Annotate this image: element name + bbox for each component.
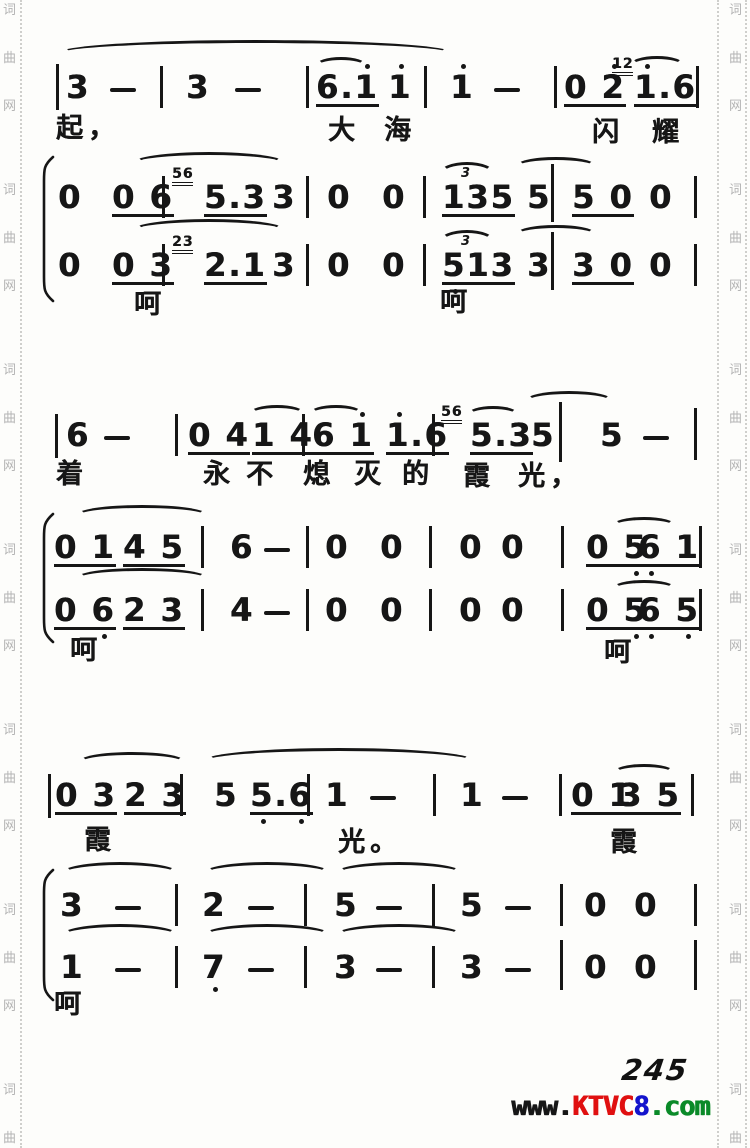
note-digit: 5 bbox=[460, 890, 484, 920]
watermark-segment: .com bbox=[648, 1091, 709, 1122]
note-digit bbox=[212, 420, 225, 450]
watermark-segment: KTVC bbox=[572, 1091, 633, 1122]
edge-watermark-char-right: 曲 bbox=[729, 592, 742, 606]
note-digit: 0 bbox=[188, 420, 212, 450]
note: 0 bbox=[58, 182, 82, 212]
barline bbox=[306, 176, 309, 218]
note-digit: 5 bbox=[442, 250, 466, 280]
note-digit: 0 bbox=[327, 250, 351, 280]
barline bbox=[175, 884, 178, 926]
note: 0 2 bbox=[564, 72, 626, 107]
note: 2 3 bbox=[123, 595, 185, 630]
barline bbox=[432, 884, 435, 926]
system-brace bbox=[40, 868, 56, 1006]
note-digit bbox=[596, 182, 609, 212]
note-digit: 5 bbox=[491, 182, 515, 212]
note-digit: 0 bbox=[380, 532, 404, 562]
note-digit: 0 bbox=[609, 182, 633, 212]
note: 0 bbox=[501, 595, 525, 625]
note-digit: 5 bbox=[675, 595, 699, 625]
lyric: 的 bbox=[402, 460, 434, 490]
note: 5 bbox=[214, 780, 238, 810]
duration-dash bbox=[264, 548, 290, 552]
note: 6 1 bbox=[312, 420, 374, 455]
edge-watermark-char-right: 曲 bbox=[729, 1132, 742, 1146]
note-digit: 0 bbox=[586, 532, 610, 562]
note-digit: 1 bbox=[354, 72, 378, 102]
edge-watermark-char-left: 曲 bbox=[3, 1132, 16, 1146]
note: 5.6 bbox=[250, 780, 313, 815]
note-digit: 3 bbox=[491, 250, 515, 280]
note: 0 bbox=[58, 250, 82, 280]
note-digit: 1 bbox=[386, 420, 410, 450]
note-digit: 3 bbox=[466, 182, 490, 212]
lyric: 呵 bbox=[134, 290, 166, 320]
duration-dash bbox=[376, 968, 402, 972]
slur-arc bbox=[204, 924, 330, 946]
note: 0 bbox=[380, 595, 404, 625]
barline bbox=[559, 774, 562, 816]
duration-dash bbox=[376, 906, 402, 910]
page-number: 245 bbox=[620, 1053, 691, 1087]
barline bbox=[694, 884, 697, 926]
site-watermark: www.KTVC8.com bbox=[511, 1091, 709, 1122]
note-digit: 3 bbox=[334, 952, 358, 982]
edge-watermark-char-right: 曲 bbox=[729, 52, 742, 66]
note-digit: 1 bbox=[60, 952, 84, 982]
duration-dash bbox=[115, 968, 141, 972]
slur-arc bbox=[133, 219, 285, 241]
note-digit: . bbox=[410, 420, 424, 450]
edge-watermark-char-right: 网 bbox=[729, 640, 742, 654]
note-digit: 0 bbox=[584, 890, 608, 920]
note-digit: 6 bbox=[672, 72, 696, 102]
note: 0 1 bbox=[54, 532, 116, 567]
duration-dash bbox=[248, 968, 274, 972]
note: 0 4 bbox=[188, 420, 250, 455]
duration-dash bbox=[643, 436, 669, 440]
note: 1 bbox=[388, 72, 412, 102]
note-digit bbox=[276, 420, 289, 450]
lyric: 呵 bbox=[54, 990, 86, 1020]
note: 5 bbox=[460, 890, 484, 920]
slur-arc bbox=[133, 152, 285, 174]
note-digit bbox=[596, 250, 609, 280]
barline bbox=[56, 64, 59, 110]
note: 6 1 bbox=[638, 532, 700, 567]
note-digit: 6 bbox=[638, 595, 662, 625]
duration-dash bbox=[264, 611, 290, 615]
edge-watermark-char-left: 网 bbox=[3, 280, 16, 294]
note: 6.1 bbox=[316, 72, 379, 107]
note: 1 bbox=[450, 72, 474, 102]
note-digit: 1 bbox=[450, 72, 474, 102]
note: 3 bbox=[272, 182, 296, 212]
note-digit: 0 bbox=[634, 890, 658, 920]
note-digit: 0 bbox=[325, 532, 349, 562]
slur-arc bbox=[76, 568, 208, 588]
edge-watermark-char-left: 词 bbox=[3, 364, 16, 378]
note: 5.3 bbox=[470, 420, 533, 455]
barline bbox=[423, 176, 426, 218]
note-digit: . bbox=[658, 72, 672, 102]
barline bbox=[304, 884, 307, 926]
edge-dotted-line bbox=[717, 0, 719, 1148]
note-digit bbox=[588, 72, 601, 102]
lyric: 灭 bbox=[354, 460, 386, 490]
note-digit: 5 bbox=[160, 532, 184, 562]
note-digit: 0 bbox=[501, 595, 525, 625]
note: 0 bbox=[649, 250, 673, 280]
note-digit: 0 bbox=[382, 182, 406, 212]
note: 6 bbox=[230, 532, 254, 562]
note-digit: . bbox=[494, 420, 508, 450]
barline bbox=[560, 940, 563, 990]
lyric: 闪 bbox=[592, 118, 624, 148]
note-digit: 5 bbox=[214, 780, 238, 810]
note-digit: 1 bbox=[388, 72, 412, 102]
barline bbox=[694, 244, 697, 286]
duration-dash bbox=[235, 88, 261, 92]
note-digit: 1 bbox=[675, 532, 699, 562]
edge-watermark-char-left: 词 bbox=[3, 1084, 16, 1098]
barline bbox=[306, 526, 309, 568]
grace-notes: 12 bbox=[612, 58, 633, 76]
note: 0 bbox=[634, 890, 658, 920]
note-digit bbox=[136, 250, 149, 280]
barline bbox=[699, 589, 702, 631]
lyric: 永 bbox=[203, 460, 235, 490]
note-digit bbox=[610, 532, 623, 562]
barline bbox=[423, 244, 426, 286]
lyric: 呵 bbox=[604, 638, 636, 668]
note-digit: 3 bbox=[60, 890, 84, 920]
barline bbox=[691, 774, 694, 816]
note-digit: 0 bbox=[584, 952, 608, 982]
slur-arc bbox=[516, 225, 596, 243]
note-digit: 6 bbox=[66, 420, 90, 450]
barline bbox=[429, 589, 432, 631]
note-digit: 5 bbox=[204, 182, 228, 212]
note: 6 bbox=[66, 420, 90, 450]
note: 1 bbox=[325, 780, 349, 810]
note-digit: 5 bbox=[470, 420, 494, 450]
barline bbox=[694, 408, 697, 460]
barline bbox=[160, 66, 163, 108]
note-digit: 3 bbox=[272, 182, 296, 212]
note: 7 bbox=[202, 952, 226, 982]
note-digit: 1 bbox=[325, 780, 349, 810]
grace-notes: 56 bbox=[172, 168, 193, 186]
note-digit: 3 bbox=[508, 420, 532, 450]
barline bbox=[306, 66, 309, 108]
duration-dash bbox=[505, 968, 531, 972]
note-digit: 3 bbox=[572, 250, 596, 280]
note-digit: 5 bbox=[600, 420, 624, 450]
edge-dotted-line bbox=[745, 0, 747, 1148]
note: 0 bbox=[584, 890, 608, 920]
note-digit bbox=[147, 595, 160, 625]
note: 0 bbox=[459, 595, 483, 625]
note-digit: 3 bbox=[186, 72, 210, 102]
note: 5 bbox=[527, 182, 551, 212]
slur-arc bbox=[203, 748, 475, 774]
note-digit: 2 bbox=[601, 72, 625, 102]
note-digit: 3 bbox=[272, 250, 296, 280]
note: 1.6 bbox=[386, 420, 449, 455]
grace-notes: 56 bbox=[441, 406, 462, 424]
note: 0 bbox=[380, 532, 404, 562]
barline bbox=[560, 884, 563, 926]
barline bbox=[561, 589, 564, 631]
slur-arc bbox=[62, 862, 178, 884]
note-digit bbox=[662, 532, 675, 562]
note-digit: 3 bbox=[619, 780, 643, 810]
edge-watermark-char-right: 词 bbox=[729, 904, 742, 918]
note: 2 3 bbox=[124, 780, 186, 815]
note: 6 5 bbox=[638, 595, 700, 630]
edge-watermark-char-right: 曲 bbox=[729, 772, 742, 786]
edge-watermark-char-left: 词 bbox=[3, 184, 16, 198]
note: 0 bbox=[382, 182, 406, 212]
triplet-number: 3 bbox=[461, 234, 470, 249]
slur-arc bbox=[58, 40, 453, 66]
barline bbox=[175, 414, 178, 456]
note: 3 0 bbox=[572, 250, 634, 285]
note-digit: 4 bbox=[123, 532, 147, 562]
note-digit: 5 bbox=[250, 780, 274, 810]
lyric: 霞 bbox=[84, 826, 116, 856]
note-digit bbox=[136, 182, 149, 212]
barline bbox=[175, 946, 178, 988]
edge-watermark-char-right: 词 bbox=[729, 184, 742, 198]
lyric: 光， bbox=[518, 462, 582, 492]
watermark-segment: 8 bbox=[633, 1091, 648, 1122]
edge-watermark-char-right: 网 bbox=[729, 1000, 742, 1014]
note-digit: 7 bbox=[202, 952, 226, 982]
edge-watermark-char-left: 曲 bbox=[3, 772, 16, 786]
note: 513 bbox=[442, 250, 515, 285]
note-digit bbox=[610, 595, 623, 625]
edge-watermark-char-left: 曲 bbox=[3, 232, 16, 246]
note-digit: 0 bbox=[380, 595, 404, 625]
slur-arc bbox=[516, 157, 596, 175]
note: 3 bbox=[186, 72, 210, 102]
slur-arc bbox=[336, 924, 462, 946]
note: 3 5 bbox=[619, 780, 681, 815]
duration-dash bbox=[115, 906, 141, 910]
edge-watermark-char-right: 网 bbox=[729, 100, 742, 114]
note-digit: 0 bbox=[586, 595, 610, 625]
lyric: 熄 bbox=[303, 460, 335, 490]
note: 0 bbox=[459, 532, 483, 562]
note-digit bbox=[148, 780, 161, 810]
note: 4 bbox=[230, 595, 254, 625]
edge-watermark-char-right: 网 bbox=[729, 460, 742, 474]
barline bbox=[432, 414, 435, 456]
barline bbox=[551, 232, 554, 290]
edge-watermark-char-left: 网 bbox=[3, 460, 16, 474]
slur-arc bbox=[78, 752, 186, 772]
note: 5.3 bbox=[204, 182, 267, 217]
note: 3 bbox=[60, 890, 84, 920]
barline bbox=[306, 589, 309, 631]
edge-watermark-char-right: 词 bbox=[729, 544, 742, 558]
barline bbox=[55, 414, 58, 458]
barline bbox=[424, 66, 427, 108]
duration-dash bbox=[370, 796, 396, 800]
edge-watermark-char-left: 网 bbox=[3, 1000, 16, 1014]
edge-watermark-char-right: 曲 bbox=[729, 232, 742, 246]
duration-dash bbox=[110, 88, 136, 92]
note-digit bbox=[78, 595, 91, 625]
lyric: 起， bbox=[56, 114, 120, 144]
note-digit: 0 bbox=[54, 595, 78, 625]
lyric: 不 bbox=[246, 460, 278, 490]
lyric: 呵 bbox=[440, 288, 472, 318]
edge-watermark-char-left: 曲 bbox=[3, 412, 16, 426]
note-digit bbox=[147, 532, 160, 562]
barline bbox=[551, 164, 554, 222]
barline bbox=[162, 244, 165, 286]
note: 0 bbox=[327, 250, 351, 280]
system-brace bbox=[40, 155, 56, 307]
duration-dash bbox=[104, 436, 130, 440]
note-digit: 0 bbox=[609, 250, 633, 280]
note-digit: 3 bbox=[242, 182, 266, 212]
note: 0 3 bbox=[55, 780, 117, 815]
note: 5 0 bbox=[572, 182, 634, 217]
barline bbox=[162, 176, 165, 218]
note-digit: 0 bbox=[649, 250, 673, 280]
note-digit bbox=[336, 420, 349, 450]
note-digit: 5 bbox=[531, 420, 555, 450]
barline bbox=[304, 946, 307, 988]
barline bbox=[561, 526, 564, 568]
note: 1 bbox=[60, 952, 84, 982]
note-digit: 0 bbox=[459, 532, 483, 562]
slur-arc bbox=[336, 862, 462, 884]
barline bbox=[180, 774, 183, 816]
note-digit: 0 bbox=[112, 250, 136, 280]
note-digit: 0 bbox=[382, 250, 406, 280]
note: 0 6 bbox=[54, 595, 116, 630]
edge-watermark-char-left: 曲 bbox=[3, 952, 16, 966]
note-digit: 0 bbox=[112, 182, 136, 212]
note-digit: 3 bbox=[460, 952, 484, 982]
note: 2.1 bbox=[204, 250, 267, 285]
note: 0 bbox=[325, 595, 349, 625]
barline bbox=[201, 526, 204, 568]
note: 3 bbox=[334, 952, 358, 982]
note-digit: 6 bbox=[230, 532, 254, 562]
duration-dash bbox=[505, 906, 531, 910]
edge-watermark-char-right: 曲 bbox=[729, 952, 742, 966]
note-digit bbox=[662, 595, 675, 625]
edge-watermark-char-left: 曲 bbox=[3, 592, 16, 606]
edge-watermark-char-left: 词 bbox=[3, 904, 16, 918]
note: 0 bbox=[501, 532, 525, 562]
note-digit: 0 bbox=[649, 182, 673, 212]
note-digit: 0 bbox=[55, 780, 79, 810]
watermark-segment: www. bbox=[511, 1091, 572, 1122]
slur-arc bbox=[76, 505, 208, 525]
slur-arc bbox=[62, 924, 178, 946]
edge-watermark-char-right: 曲 bbox=[729, 412, 742, 426]
note-digit: 3 bbox=[160, 595, 184, 625]
note-digit: 0 bbox=[459, 595, 483, 625]
barline bbox=[307, 774, 310, 816]
note: 3 bbox=[460, 952, 484, 982]
edge-dotted-line bbox=[20, 0, 22, 1148]
barline bbox=[429, 526, 432, 568]
lyric: 光。 bbox=[338, 828, 402, 858]
note: 0 bbox=[325, 532, 349, 562]
note: 0 bbox=[649, 182, 673, 212]
note: 0 bbox=[327, 182, 351, 212]
note-digit: 0 bbox=[571, 780, 595, 810]
barline bbox=[559, 402, 562, 462]
note-digit bbox=[78, 532, 91, 562]
duration-dash bbox=[502, 796, 528, 800]
note-digit: 5 bbox=[527, 182, 551, 212]
note-digit: 1 bbox=[242, 250, 266, 280]
note-digit bbox=[643, 780, 656, 810]
edge-watermark-char-right: 网 bbox=[729, 820, 742, 834]
note-digit: 3 bbox=[527, 250, 551, 280]
lyric: 霞 bbox=[610, 828, 642, 858]
note-digit: 1 bbox=[466, 250, 490, 280]
barline bbox=[696, 66, 699, 108]
edge-watermark-char-left: 曲 bbox=[3, 52, 16, 66]
note: 3 bbox=[527, 250, 551, 280]
note-digit: 1 bbox=[634, 72, 658, 102]
edge-watermark-char-right: 词 bbox=[729, 1084, 742, 1098]
note: 4 5 bbox=[123, 532, 185, 567]
note-digit: . bbox=[228, 250, 242, 280]
note-digit: 5 bbox=[334, 890, 358, 920]
lyric: 海 bbox=[384, 116, 416, 146]
note-digit: 4 bbox=[230, 595, 254, 625]
note: 3 bbox=[272, 250, 296, 280]
note-digit: 5 bbox=[572, 182, 596, 212]
note-digit: 1 bbox=[442, 182, 466, 212]
duration-dash bbox=[248, 906, 274, 910]
note-digit: 0 bbox=[327, 182, 351, 212]
barline bbox=[48, 774, 51, 818]
note-digit bbox=[595, 780, 608, 810]
note-digit: 0 bbox=[58, 182, 82, 212]
edge-watermark-char-left: 网 bbox=[3, 640, 16, 654]
note: 0 bbox=[382, 250, 406, 280]
edge-watermark-char-left: 网 bbox=[3, 820, 16, 834]
note-digit: . bbox=[274, 780, 288, 810]
note: 135 bbox=[442, 182, 515, 217]
note-digit: 3 bbox=[66, 72, 90, 102]
note-digit: 0 bbox=[634, 952, 658, 982]
note-digit: 1 bbox=[91, 532, 115, 562]
note-digit: 6 bbox=[312, 420, 336, 450]
edge-watermark-char-right: 词 bbox=[729, 4, 742, 18]
note-digit: 1 bbox=[349, 420, 373, 450]
note-digit: . bbox=[340, 72, 354, 102]
edge-watermark-char-right: 网 bbox=[729, 280, 742, 294]
note: 5 bbox=[334, 890, 358, 920]
note: 5 bbox=[600, 420, 624, 450]
note-digit: 2 bbox=[204, 250, 228, 280]
edge-watermark-char-right: 词 bbox=[729, 724, 742, 738]
note-digit: 2 bbox=[202, 890, 226, 920]
